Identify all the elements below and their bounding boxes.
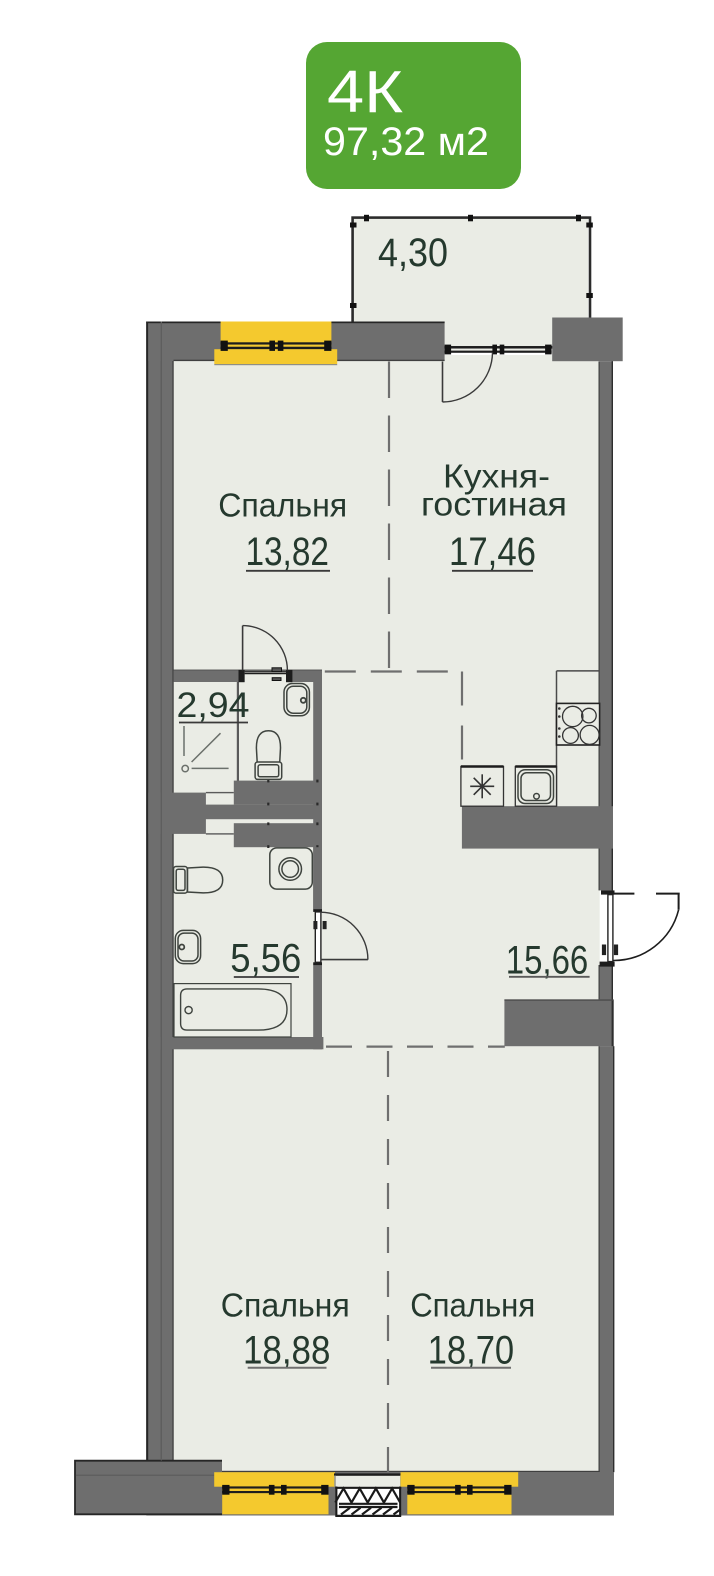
- svg-text:2,94: 2,94: [177, 686, 250, 725]
- svg-text:Спальня: Спальня: [218, 487, 347, 524]
- svg-text:18,88: 18,88: [243, 1329, 331, 1373]
- svg-text:17,46: 17,46: [449, 530, 536, 574]
- svg-text:Спальня: Спальня: [221, 1288, 350, 1325]
- svg-text:4К: 4К: [327, 59, 404, 125]
- svg-text:Спальня: Спальня: [410, 1288, 535, 1325]
- svg-text:13,82: 13,82: [245, 530, 329, 574]
- svg-text:гостиная: гостиная: [421, 487, 567, 524]
- svg-text:97,32 м2: 97,32 м2: [323, 120, 489, 164]
- svg-text:4,30: 4,30: [378, 231, 448, 275]
- svg-text:5,56: 5,56: [230, 937, 301, 981]
- svg-text:18,70: 18,70: [428, 1329, 515, 1373]
